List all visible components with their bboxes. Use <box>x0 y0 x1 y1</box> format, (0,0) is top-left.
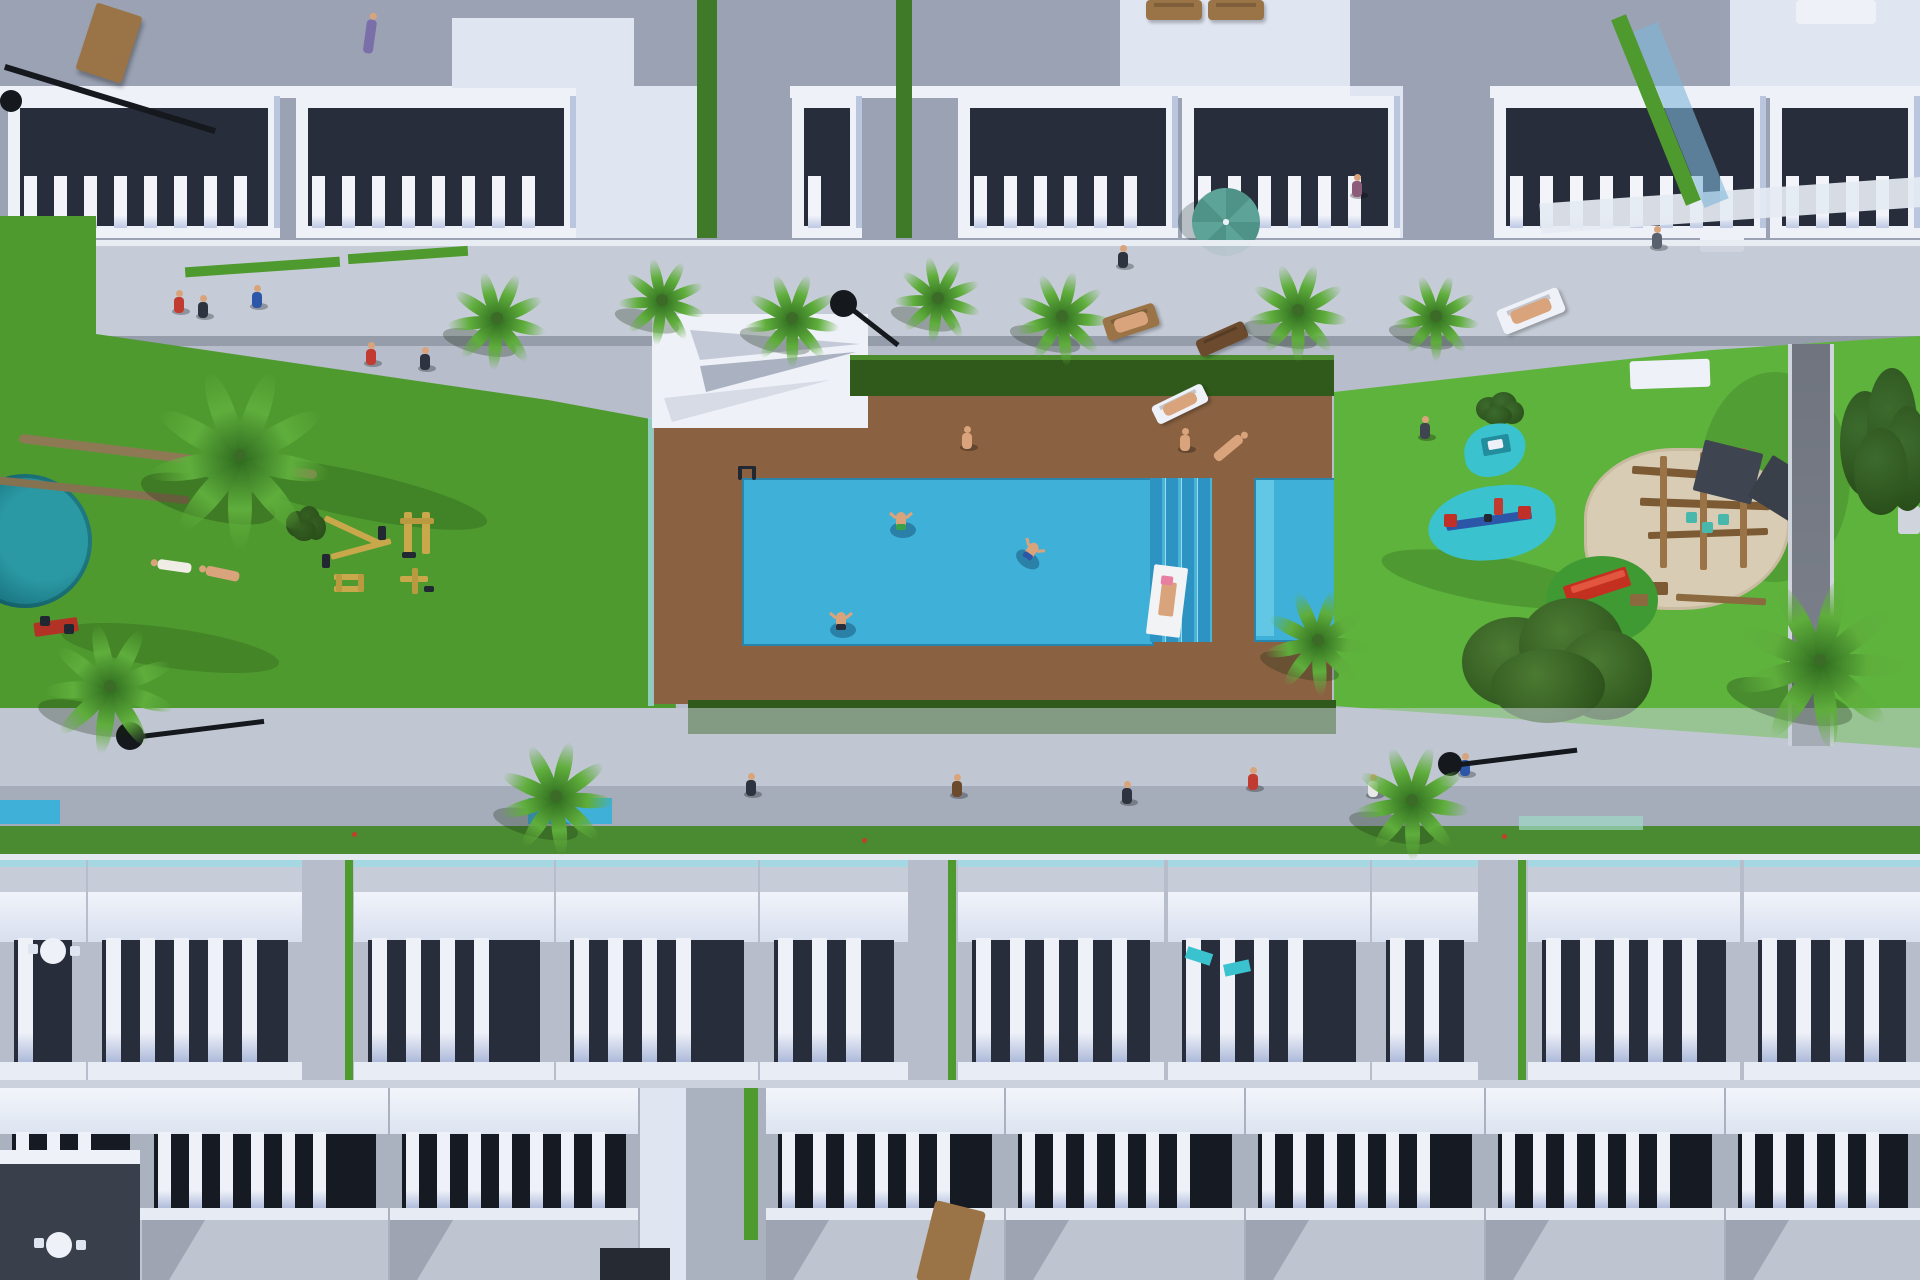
row1-house-10-topbar <box>1744 892 1920 942</box>
baluster <box>1773 1132 1786 1210</box>
baluster <box>1022 1132 1035 1210</box>
baluster <box>608 938 623 1064</box>
baluster <box>1830 938 1845 1064</box>
baluster <box>1648 938 1663 1064</box>
row2-house-1-roofbar <box>0 1088 142 1134</box>
lawn-red-toy-part-2 <box>64 624 74 634</box>
gym-frame-d-part-1 <box>412 568 418 594</box>
person-right-lawn-head <box>1422 416 1429 423</box>
alley-stairs <box>717 0 789 238</box>
palm-crown <box>1056 310 1068 322</box>
row1-house-4-interior <box>570 940 744 1064</box>
baluster <box>1657 1132 1670 1210</box>
palm-crown <box>656 294 668 306</box>
upper-person-1-body <box>174 297 184 313</box>
play-structure-part-10 <box>1718 514 1729 525</box>
terrace-patio-set-table <box>40 938 66 964</box>
row1-house-6-glass <box>958 860 1164 867</box>
deck-glass-edge <box>648 418 654 706</box>
baluster <box>1682 938 1697 1064</box>
baluster <box>592 1132 605 1210</box>
pool-float-mattress-part-2 <box>1160 575 1173 585</box>
bottom-left-patio-chair-a <box>34 1238 44 1248</box>
palm-crown <box>491 312 503 324</box>
baluster <box>114 176 127 232</box>
stair-tower-center-green <box>896 0 912 238</box>
baluster <box>1417 1132 1430 1210</box>
row2-house-5-roofbar <box>1006 1088 1244 1134</box>
balcony-unit-3-rail <box>792 228 862 238</box>
row2-house-2-interior <box>154 1134 376 1208</box>
baluster <box>778 938 793 1064</box>
baluster <box>1424 938 1439 1064</box>
kids-pool-steps <box>1256 480 1274 636</box>
baluster <box>1084 1132 1097 1210</box>
walker-5-head <box>1462 753 1469 760</box>
baluster <box>474 938 489 1064</box>
balcony-unit-7-rail <box>1770 228 1920 238</box>
gym-frame-c-part-3 <box>358 574 364 592</box>
baluster <box>372 176 385 232</box>
upper-person-1-head <box>176 290 183 297</box>
upper-person-4-body <box>366 349 376 365</box>
row2-house-6-sill <box>1246 1208 1484 1220</box>
row2-house-4-roofbar <box>766 1088 1004 1134</box>
baluster <box>574 938 589 1064</box>
baluster <box>1355 1132 1368 1210</box>
baluster <box>1866 1132 1879 1210</box>
baluster <box>1177 1132 1190 1210</box>
baluster <box>204 176 217 232</box>
corner-trees-foliage-3 <box>1854 428 1908 515</box>
baluster <box>1078 938 1093 1064</box>
walker-2-body <box>952 781 962 797</box>
baluster <box>282 1132 295 1210</box>
baluster <box>1386 1132 1399 1210</box>
baluster <box>402 176 415 232</box>
baluster <box>813 1132 826 1210</box>
baluster <box>208 938 223 1064</box>
roof-lounger-b-stripe <box>1216 3 1255 7</box>
row2-house-6-roofbar <box>1246 1088 1484 1134</box>
roof-table-tr <box>1796 0 1876 24</box>
baluster <box>1146 1132 1159 1210</box>
baluster <box>1115 1132 1128 1210</box>
baluster <box>1796 938 1811 1064</box>
baluster <box>1010 938 1025 1064</box>
baluster <box>1324 1132 1337 1210</box>
deck-walker-body <box>1180 435 1190 451</box>
play-structure-part-9 <box>1702 522 1713 533</box>
row1-house-9-sill <box>1528 1062 1740 1082</box>
deck-runner-head <box>964 426 971 433</box>
flowering-tree <box>1462 598 1652 726</box>
baluster <box>313 1132 326 1210</box>
upper-walk-curb <box>0 240 1920 246</box>
baluster <box>1546 938 1561 1064</box>
main-pool <box>742 478 1154 646</box>
terrace-patio-set-chair-b <box>70 946 80 956</box>
row1-house-3-sill <box>354 1062 554 1082</box>
gym-frame-b-part-2 <box>400 518 434 524</box>
aerial-render-canvas <box>0 0 1920 1280</box>
swimmer-1-trunks <box>896 524 906 530</box>
row2-house-8-interior <box>1738 1134 1908 1208</box>
row1-house-7-glass <box>1168 860 1370 867</box>
baluster <box>1864 938 1879 1064</box>
roof-wall-a <box>576 86 697 238</box>
baluster <box>1293 1132 1306 1210</box>
person-right-lawn-body <box>1420 423 1430 439</box>
baluster <box>234 176 247 232</box>
row1-house-9-topbar <box>1528 892 1740 942</box>
gym-frame-d-part-2 <box>424 586 434 592</box>
baluster <box>522 176 535 232</box>
row2-house-7-sill <box>1486 1208 1724 1220</box>
roof-white-block-a <box>452 18 634 88</box>
right-lawn-bush <box>1476 392 1524 426</box>
bottom-left-patio-chair-b <box>76 1240 86 1250</box>
baluster <box>974 176 987 232</box>
row2-house-2-sill <box>142 1208 388 1220</box>
corner-trees <box>1840 368 1920 518</box>
row1-house-8-topbar <box>1372 892 1478 942</box>
row1-house-1-sill <box>0 1062 86 1082</box>
row2-house-8-sill <box>1726 1208 1920 1220</box>
baluster <box>372 938 387 1064</box>
baluster <box>462 176 475 232</box>
baluster <box>440 938 455 1064</box>
baluster <box>530 1132 543 1210</box>
row1-house-2-glass <box>88 860 302 867</box>
swimmer-3-trunks <box>836 624 846 630</box>
walker-4-body <box>1248 774 1258 790</box>
row1-house-5-topbar <box>760 892 908 942</box>
baluster <box>812 938 827 1064</box>
upper-lamp-left-head <box>0 90 22 112</box>
bottom-left-frame <box>0 1150 140 1164</box>
row1-house-5-glass <box>760 860 908 867</box>
baluster <box>875 1132 888 1210</box>
baluster <box>251 1132 264 1210</box>
palm-crown <box>104 680 116 692</box>
upper-person-3-body <box>252 292 262 308</box>
baluster <box>1614 938 1629 1064</box>
balcony-unit-7 <box>1770 96 1920 238</box>
person-right-terrace-body <box>1652 233 1662 249</box>
left-lawn-wedge <box>0 216 96 336</box>
row1-house-4-topbar <box>556 892 758 942</box>
upper-person-4-head <box>368 342 375 349</box>
bottom-left-court <box>0 1150 140 1280</box>
lawn-red-toy-part-1 <box>40 616 50 626</box>
palm-crown <box>1312 634 1324 646</box>
baluster <box>432 176 445 232</box>
row1-house-5-sill <box>760 1062 908 1082</box>
baluster <box>1044 938 1059 1064</box>
stair-tower-right <box>1403 10 1490 238</box>
baluster <box>1533 1132 1546 1210</box>
baluster <box>1124 176 1137 232</box>
roof-lounger-a-stripe <box>1154 3 1193 7</box>
row1-house-6-sill <box>958 1062 1164 1082</box>
baluster <box>406 938 421 1064</box>
baluster <box>782 1132 795 1210</box>
walker-4-head <box>1250 767 1257 774</box>
baluster <box>1626 1132 1639 1210</box>
row2-house-5-sill <box>1006 1208 1244 1220</box>
row2-house-7-roofbar <box>1486 1088 1724 1134</box>
baluster <box>1835 1132 1848 1210</box>
baluster <box>846 938 861 1064</box>
baluster <box>808 176 821 232</box>
terrace-glass-right <box>1519 816 1643 830</box>
baluster <box>1288 938 1303 1064</box>
baluster <box>1034 176 1047 232</box>
baluster <box>561 1132 574 1210</box>
gym-frame-c-part-2 <box>336 574 342 592</box>
baluster <box>676 938 691 1064</box>
baluster <box>437 1132 450 1210</box>
row1-house-9-interior <box>1542 940 1726 1064</box>
baluster <box>1094 176 1107 232</box>
baluster <box>1288 176 1301 232</box>
row1-house-4-glass <box>556 860 758 867</box>
baluster <box>976 938 991 1064</box>
upper-lamp-head <box>830 290 857 317</box>
row2-house-3-roofbar <box>390 1088 638 1134</box>
upper-person-5-body <box>420 354 430 370</box>
alley-green-strip <box>697 0 717 238</box>
baluster <box>1220 938 1235 1064</box>
row1-house-3-glass <box>354 860 554 867</box>
baluster <box>106 938 121 1064</box>
baluster <box>1564 1132 1577 1210</box>
balcony-unit-4 <box>958 96 1178 238</box>
balcony-person-body <box>1352 181 1362 197</box>
planter-strip <box>0 826 1920 856</box>
palm-crown <box>1406 794 1418 806</box>
baluster <box>242 938 257 1064</box>
baluster <box>844 1132 857 1210</box>
baluster <box>499 1132 512 1210</box>
baluster <box>174 938 189 1064</box>
palm-crown <box>550 790 562 802</box>
baluster <box>937 1132 950 1210</box>
upper-person-2-head <box>200 295 207 302</box>
terrace-patio-set-chair-a <box>28 944 38 954</box>
row2-house-8-roofbar <box>1726 1088 1920 1134</box>
seesaw-part-1 <box>1444 514 1457 527</box>
row1-house-2-interior <box>102 940 288 1064</box>
row1-passage-b-green <box>948 860 956 1082</box>
palm-crown <box>786 312 798 324</box>
balcony-unit-2 <box>296 96 576 238</box>
baluster <box>18 938 33 1064</box>
row1-house-8-glass <box>1372 860 1478 867</box>
baluster <box>220 1132 233 1210</box>
row1-passage-a-green <box>345 860 353 1082</box>
person-right-terrace-head <box>1654 226 1661 233</box>
row1-house-9-glass <box>1528 860 1740 867</box>
row2-house-3-sill <box>390 1208 638 1220</box>
balcony-unit-4-rail <box>958 228 1178 238</box>
row2-house-2-roofbar <box>142 1088 388 1134</box>
baluster <box>906 1132 919 1210</box>
upper-person-2-body <box>198 302 208 318</box>
baluster <box>158 1132 171 1210</box>
baluster <box>1318 176 1331 232</box>
baluster <box>312 176 325 232</box>
balcony-person-head <box>1354 174 1361 181</box>
row1-house-6-topbar <box>958 892 1164 942</box>
upper-person-6-head <box>1120 245 1127 252</box>
baluster <box>406 1132 419 1210</box>
walker-3-body <box>1122 788 1132 804</box>
deck-runner-body <box>962 433 972 449</box>
row1-house-10-glass <box>1744 860 1920 867</box>
baluster <box>1580 938 1595 1064</box>
baluster <box>492 176 505 232</box>
row1-house-1-glass <box>0 860 86 867</box>
row1-house-2-sill <box>88 1062 302 1082</box>
gym-frame-b-part-3 <box>402 552 416 558</box>
upper-person-6-body <box>1118 252 1128 268</box>
terrace-pool-a <box>0 800 60 824</box>
roof-lounger-a <box>1146 0 1202 20</box>
deck-walker-head <box>1182 428 1189 435</box>
baluster <box>1510 176 1523 232</box>
row2-dark-patch <box>600 1248 670 1280</box>
baluster <box>1804 1132 1817 1210</box>
bottom-left-patio-table <box>46 1232 72 1258</box>
row1-house-7-sill <box>1168 1062 1370 1082</box>
baluster <box>1053 1132 1066 1210</box>
row1-house-2-topbar <box>88 892 302 942</box>
upper-person-3-head <box>254 285 261 292</box>
baluster <box>642 938 657 1064</box>
gym-frame-a-part-2 <box>322 554 330 568</box>
row1-house-3-topbar <box>354 892 554 942</box>
row2-passage-green <box>744 1088 758 1240</box>
play-structure-part-3 <box>1660 456 1667 568</box>
palm-crown <box>1814 654 1826 666</box>
play-structure-part-8 <box>1686 512 1697 523</box>
baluster <box>144 176 157 232</box>
baluster <box>1595 1132 1608 1210</box>
walker-2-head <box>954 774 961 781</box>
baluster <box>140 938 155 1064</box>
walker-1-head <box>748 773 755 780</box>
baluster <box>1390 938 1405 1064</box>
lawn-white-slab <box>1630 359 1711 390</box>
walker-3-head <box>1124 781 1131 788</box>
row1-house-4-sill <box>556 1062 758 1082</box>
row1-house-7-topbar <box>1168 892 1370 942</box>
seesaw-part-4 <box>1494 498 1503 515</box>
row1-passage-c-green <box>1518 860 1526 1082</box>
baluster <box>1262 1132 1275 1210</box>
hedge-top <box>850 360 1334 396</box>
upper-lounger-tan-person <box>1112 310 1149 333</box>
baluster <box>1742 1132 1755 1210</box>
palm-crown <box>932 292 944 304</box>
baluster <box>1112 938 1127 1064</box>
baluster <box>1762 938 1777 1064</box>
seesaw-part-3 <box>1484 514 1492 522</box>
baluster <box>1254 938 1269 1064</box>
palm-crown <box>234 449 246 461</box>
pool-ladder-part-2 <box>738 466 756 469</box>
roof-lounger-b <box>1208 0 1264 20</box>
baluster <box>189 1132 202 1210</box>
palm-crown <box>1430 310 1442 322</box>
baluster <box>174 176 187 232</box>
planter-flower-b <box>862 838 867 843</box>
baluster <box>342 176 355 232</box>
baluster <box>468 1132 481 1210</box>
row1-house-1-topbar <box>0 892 86 942</box>
seesaw-part-2 <box>1518 506 1531 519</box>
row1-house-10-sill <box>1744 1062 1920 1082</box>
palm-crown <box>1292 304 1304 316</box>
baluster <box>1502 1132 1515 1210</box>
walker-1-body <box>746 780 756 796</box>
row1-house-8-sill <box>1372 1062 1478 1082</box>
balcony-unit-2-rail <box>296 228 576 238</box>
baluster <box>1064 176 1077 232</box>
upper-person-5-head <box>422 347 429 354</box>
balcony-unit-3 <box>792 96 862 238</box>
gym-frame-a-part-3 <box>378 526 386 540</box>
baluster <box>1004 176 1017 232</box>
terrace-parasol-tip <box>1223 219 1228 224</box>
